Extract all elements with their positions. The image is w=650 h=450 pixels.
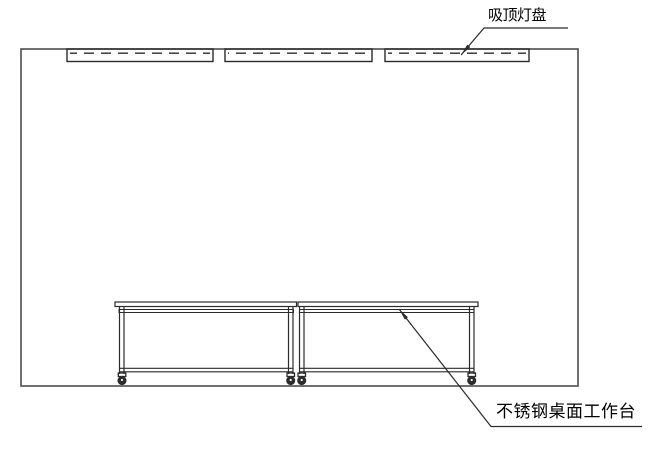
tabletop: [115, 302, 297, 307]
ceiling-light-panel: [225, 49, 372, 62]
caster-wheel: [467, 373, 476, 385]
caster-wheel: [297, 373, 306, 385]
caster-wheel: [118, 373, 127, 385]
workbench-section-right: [298, 302, 478, 374]
ceiling-light-panels: [67, 49, 529, 62]
tabletop: [298, 302, 478, 307]
elevation-drawing: 吸顶灯盘 不锈钢桌面工作台: [0, 0, 650, 450]
table-leg: [120, 307, 125, 375]
ceiling-light-panel: [67, 49, 213, 62]
caster-wheel: [286, 373, 295, 385]
ceiling-lamp-leader-line: [461, 28, 568, 55]
ceiling-lamp-label: 吸顶灯盘: [488, 8, 546, 25]
frame-rail: [119, 310, 294, 313]
workbench-section-left: [115, 302, 297, 374]
workbench: [115, 302, 478, 385]
ceiling-light-panel: [385, 49, 529, 62]
stretcher-bar: [120, 368, 294, 372]
workbench-label: 不锈钢桌面工作台: [496, 403, 636, 422]
drawing-canvas: [0, 0, 650, 450]
table-leg: [289, 307, 294, 375]
table-leg: [300, 307, 305, 375]
frame-rail: [300, 310, 475, 313]
table-leg: [470, 307, 475, 375]
